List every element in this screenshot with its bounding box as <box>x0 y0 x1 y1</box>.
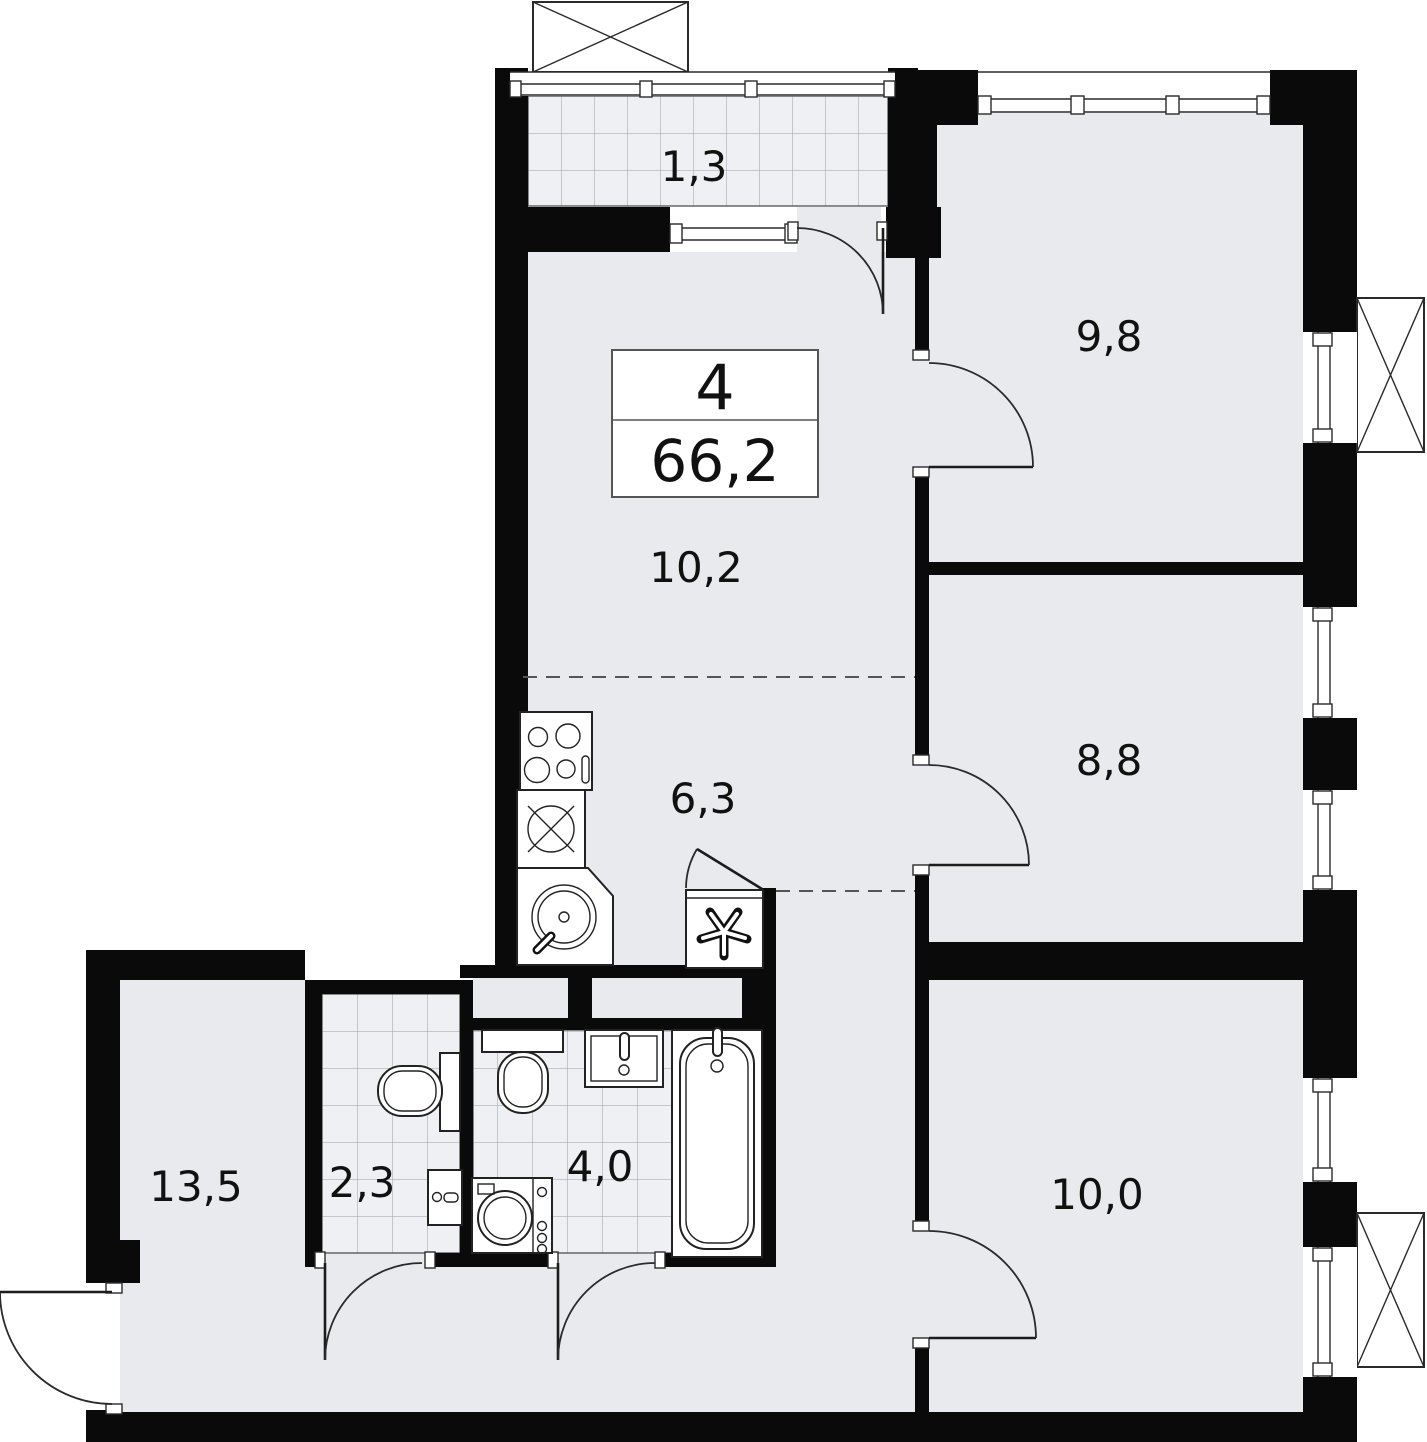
bathtub <box>672 1028 762 1257</box>
floor-door-gap-wc <box>325 1253 425 1267</box>
label-bedroom-middle: 8,8 <box>1076 736 1143 785</box>
bathroom-sink <box>585 1030 663 1087</box>
stove <box>520 712 592 790</box>
floor-balcony-door-opening <box>797 207 881 257</box>
floor-plan-drawing: 1,3 9,8 10,2 6,3 8,8 13,5 2,3 4,0 10,0 4… <box>0 0 1427 1442</box>
floor-duct-right <box>592 978 742 1021</box>
elevator-shaft-top <box>533 2 688 72</box>
elevator-shaft-right-bottom <box>1357 1213 1424 1367</box>
floor-plan: 1,3 9,8 10,2 6,3 8,8 13,5 2,3 4,0 10,0 4… <box>0 0 1427 1442</box>
balcony-railing <box>510 72 895 97</box>
window-right-1 <box>1303 332 1357 443</box>
door-entrance <box>0 1292 112 1404</box>
elevator-shaft-right-top <box>1357 298 1424 452</box>
window-kitchen <box>670 207 797 252</box>
label-wc: 2,3 <box>329 1158 396 1207</box>
oven-unit <box>517 790 585 868</box>
label-bedroom-top: 9,8 <box>1076 312 1143 361</box>
floor-door-gap-3 <box>915 1231 929 1338</box>
label-kitchen-zone: 6,3 <box>670 774 737 823</box>
floor-door-gap-1 <box>915 360 929 467</box>
total-area: 66,2 <box>650 427 779 495</box>
fridge <box>686 890 763 968</box>
washing-machine <box>472 1178 552 1254</box>
window-bedroom-top <box>978 70 1270 114</box>
label-bathroom: 4,0 <box>567 1142 634 1191</box>
info-box: 4 66,2 <box>612 350 818 497</box>
floor-door-gap-2 <box>915 765 929 865</box>
floor-living-room <box>120 980 305 1270</box>
window-right-2 <box>1303 607 1357 718</box>
rooms-count: 4 <box>695 351 734 424</box>
label-bedroom-bottom: 10,0 <box>1050 1170 1144 1219</box>
window-right-5 <box>1303 1247 1357 1377</box>
label-living-kitchen: 10,2 <box>649 543 743 592</box>
label-balcony: 1,3 <box>661 142 728 191</box>
floor-hall <box>120 1263 915 1412</box>
kitchen-sink <box>517 868 613 965</box>
wc-sink <box>428 1170 462 1225</box>
floor-duct-left <box>473 978 568 1021</box>
window-right-4 <box>1303 1078 1357 1182</box>
window-right-3 <box>1303 790 1357 890</box>
label-living-room: 13,5 <box>149 1162 243 1211</box>
